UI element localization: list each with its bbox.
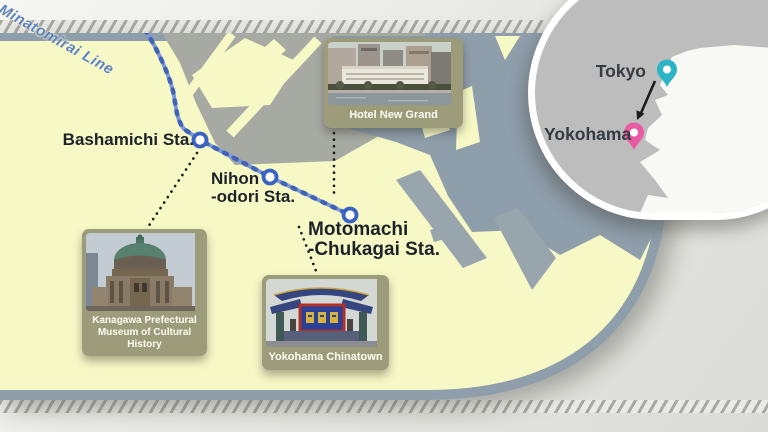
landmark-card-kanagawa-museum: Kanagawa Prefectural Museum of Cultural …: [82, 229, 207, 356]
station-marker-bashamichi: [194, 134, 207, 147]
yokohama-chinatown-photo: [266, 279, 385, 347]
landmark-caption: Kanagawa Prefectural Museum of Cultural …: [86, 311, 203, 356]
hotel-new-grand-photo: [328, 42, 459, 105]
station-label-nihon-odori: Nihon -odori Sta.: [211, 170, 295, 206]
landmark-caption: Yokohama Chinatown: [266, 347, 385, 370]
island-shape: [724, 192, 730, 198]
landmark-card-hotel-new-grand: Hotel New Grand: [324, 38, 463, 128]
tokyo-label: Tokyo: [596, 61, 646, 81]
station-label-line2: -odori Sta.: [211, 188, 295, 206]
tokyo-to-yokohama-arrow: [641, 81, 655, 113]
caption-line2: Museum of Cultural History: [86, 327, 203, 351]
landmark-caption: Hotel New Grand: [328, 105, 459, 128]
broadcast-map-graphic: Bashamichi Sta. Nihon -odori Sta. Motoma…: [0, 0, 768, 432]
bottom-stripe-band: [0, 400, 768, 413]
caption-line1: Kanagawa Prefectural: [86, 315, 203, 327]
station-label-bashamichi: Bashamichi Sta.: [18, 130, 194, 150]
landmark-card-yokohama-chinatown: Yokohama Chinatown: [262, 275, 389, 370]
yokohama-label: Yokohama: [544, 124, 631, 144]
kanagawa-museum-photo: [86, 233, 203, 311]
tokyo-yokohama-locator-map: Tokyo Yokohama: [535, 0, 768, 213]
